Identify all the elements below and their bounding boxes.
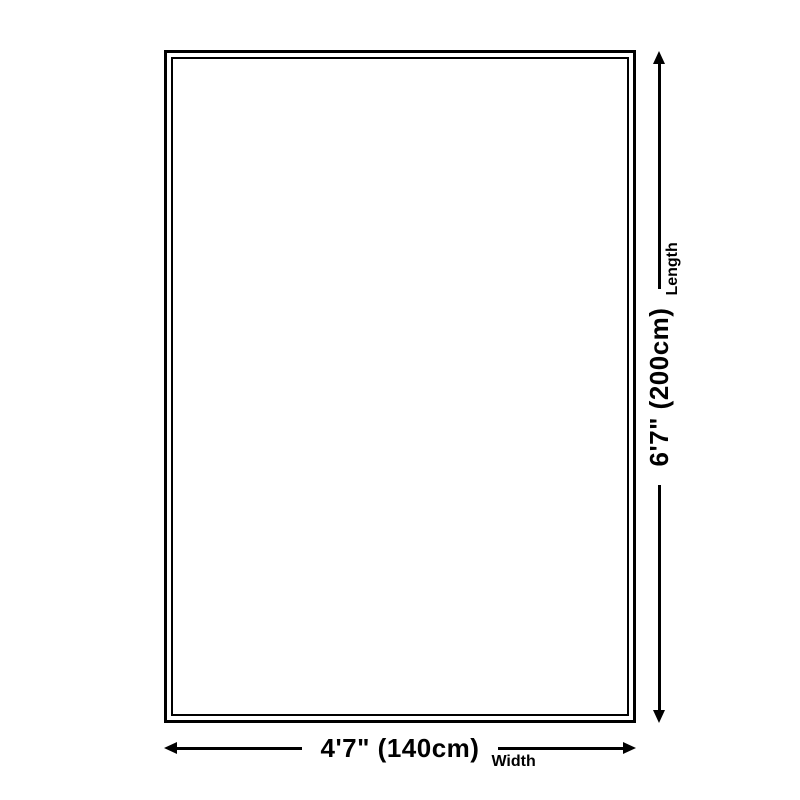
length-dimension-line: 6'7" (200cm) Length [639, 51, 679, 723]
arrow-up-icon [653, 51, 665, 64]
arrow-left-icon [164, 742, 177, 754]
length-dimension-segment-upper: Length [658, 64, 661, 289]
arrow-right-icon [623, 742, 636, 754]
arrow-down-icon [653, 710, 665, 723]
length-label: Length [665, 242, 681, 295]
width-dimension-segment-left [177, 747, 302, 750]
width-label: Width [491, 754, 535, 770]
product-outline-inner-border [171, 57, 629, 716]
length-value: 6'7" (200cm) [646, 308, 672, 467]
width-value: 4'7" (140cm) [321, 735, 480, 761]
width-dimension-segment-right: Width [498, 747, 623, 750]
length-dimension-segment-lower [658, 485, 661, 710]
dimension-diagram: 6'7" (200cm) Length 4'7" (140cm) Width [0, 0, 800, 800]
width-dimension-line: 4'7" (140cm) Width [164, 728, 636, 768]
product-outline-outer-border [164, 50, 636, 723]
